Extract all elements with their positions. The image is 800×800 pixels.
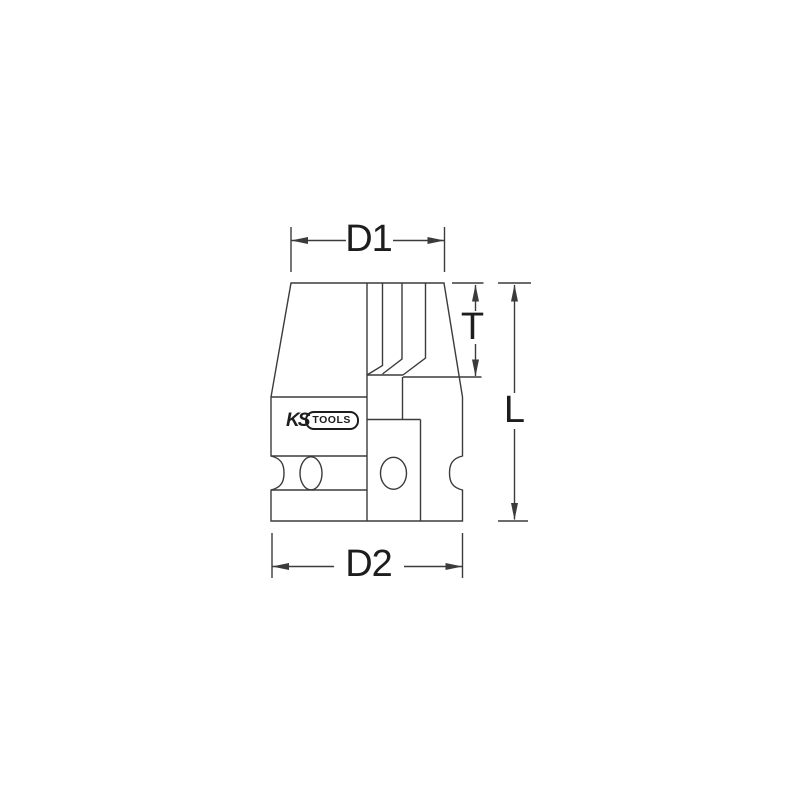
pin-holes bbox=[300, 457, 407, 490]
drive-boss-lines bbox=[367, 377, 421, 521]
l-arrow-up bbox=[511, 285, 518, 302]
brand-logo-tools: TOOLS bbox=[305, 411, 358, 430]
socket-technical-drawing bbox=[0, 0, 800, 800]
facet-line-3 bbox=[383, 283, 403, 374]
brand-logo: KS TOOLS bbox=[286, 411, 359, 430]
t-arrow-up bbox=[472, 285, 479, 302]
dimension-label-d1: D1 bbox=[345, 220, 392, 258]
pin-hole-left bbox=[300, 457, 322, 490]
d1-arrow-left bbox=[291, 237, 308, 244]
dimension-label-d2: D2 bbox=[345, 545, 392, 583]
dimension-label-l: L bbox=[504, 391, 524, 429]
brand-logo-ks: KS bbox=[286, 411, 308, 430]
facet-line-4 bbox=[403, 283, 426, 375]
dimension-label-t: T bbox=[461, 308, 483, 346]
pin-hole-center bbox=[381, 457, 407, 489]
d2-arrow-left bbox=[272, 563, 289, 570]
facet-line-2 bbox=[367, 283, 383, 375]
product-drawing-canvas: D1 D2 T L KS TOOLS bbox=[0, 0, 800, 800]
d2-arrow-right bbox=[446, 563, 463, 570]
t-arrow-down bbox=[472, 360, 479, 377]
l-arrow-down bbox=[511, 503, 518, 520]
d1-arrow-right bbox=[428, 237, 445, 244]
